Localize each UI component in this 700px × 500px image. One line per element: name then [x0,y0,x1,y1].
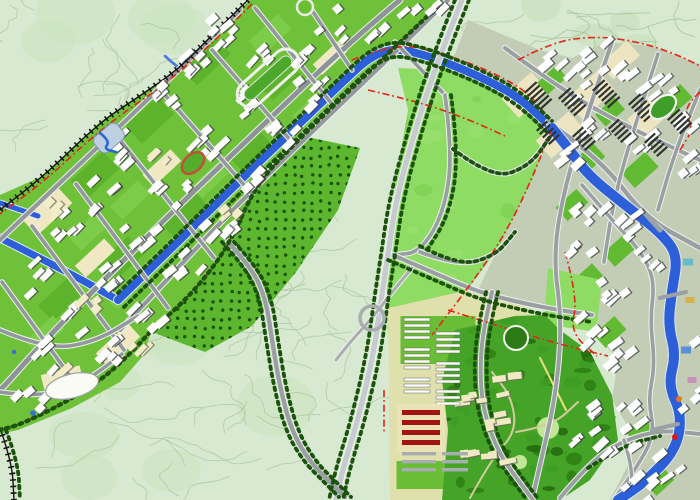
east-block-teal [683,259,693,266]
east-block-blue [681,347,691,354]
masterplan-map [0,0,700,500]
east-block-pink [688,377,697,383]
map-canvas [0,0,700,500]
bridge-marker-orange [676,396,682,402]
pond-small-2 [12,350,16,354]
bridge-marker-red [672,434,678,440]
amphitheater [504,326,528,350]
roundabout [297,0,313,15]
east-block-gold [686,297,695,303]
district-green-2 [397,461,452,489]
district-gray-rows [402,452,468,471]
pond-small-1 [30,410,36,416]
